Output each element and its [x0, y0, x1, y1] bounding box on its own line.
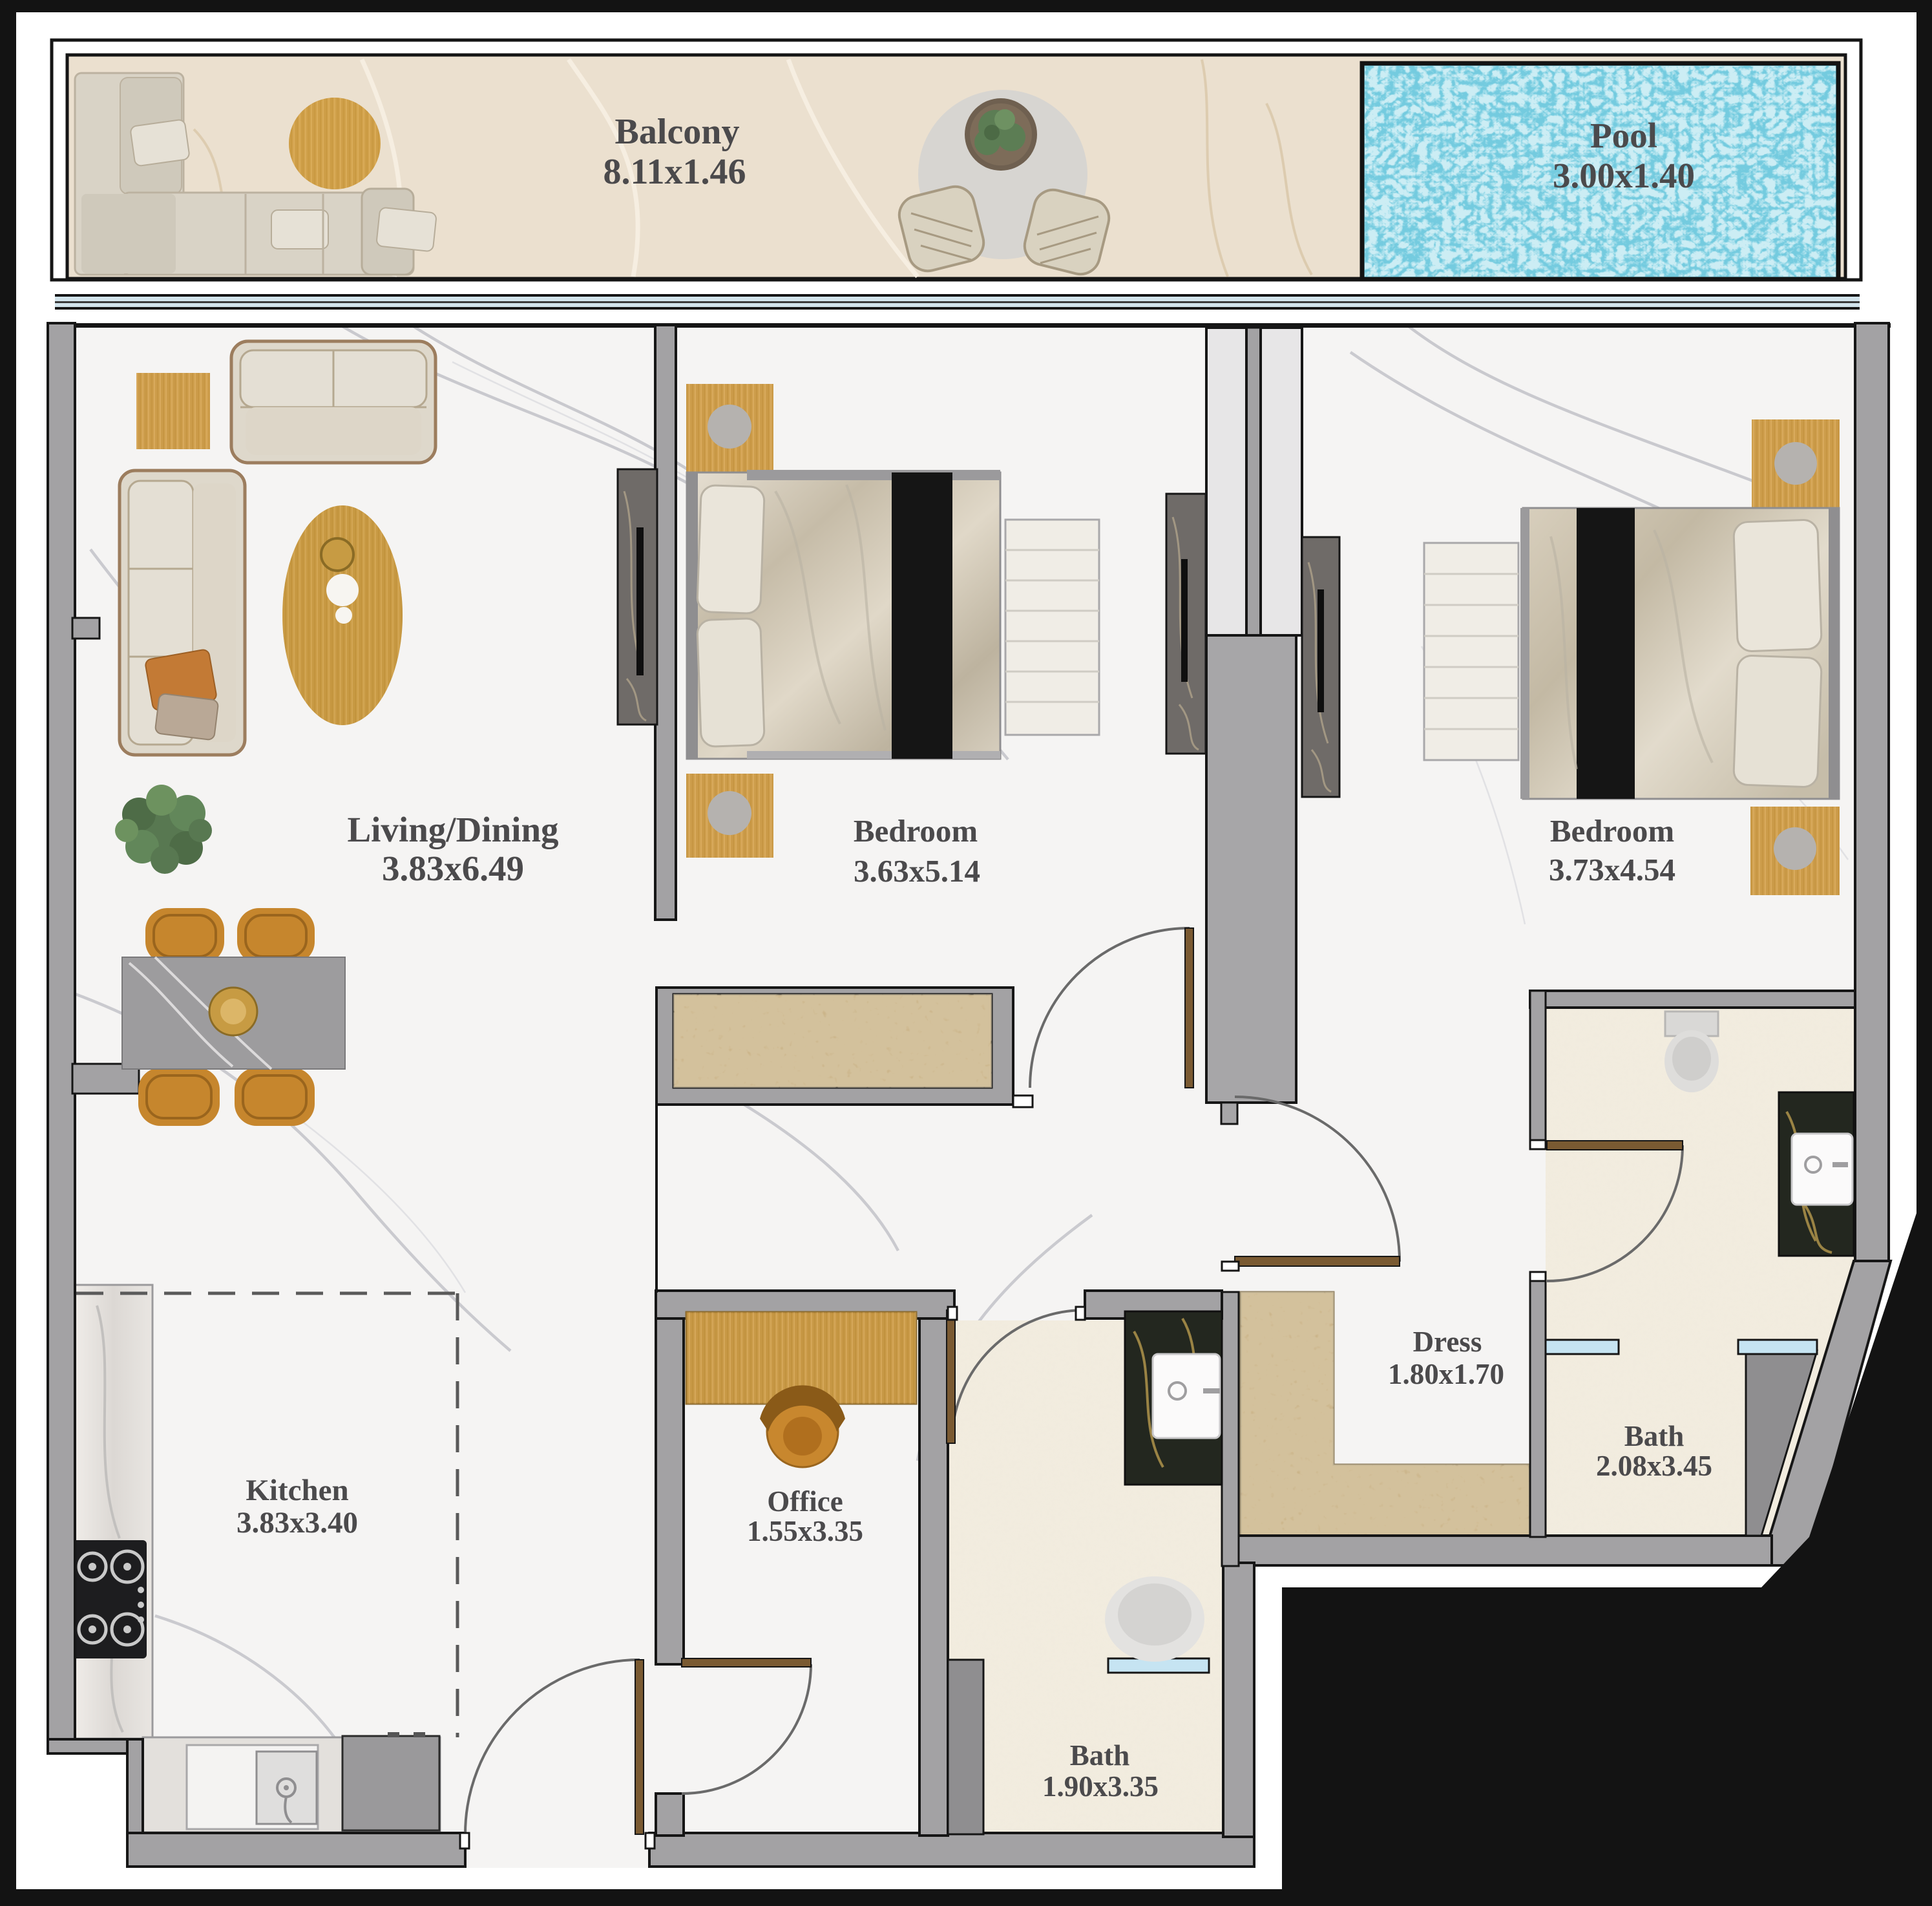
svg-text:Dress: Dress	[1413, 1326, 1482, 1358]
svg-text:3.83x3.40: 3.83x3.40	[236, 1506, 358, 1540]
svg-text:Bedroom: Bedroom	[854, 813, 978, 849]
svg-text:Bath: Bath	[1624, 1420, 1685, 1452]
svg-text:Pool: Pool	[1590, 116, 1657, 155]
svg-text:3.83x6.49: 3.83x6.49	[382, 849, 524, 888]
svg-text:3.63x5.14: 3.63x5.14	[854, 853, 980, 889]
svg-text:1.55x3.35: 1.55x3.35	[747, 1515, 863, 1547]
svg-text:3.73x4.54: 3.73x4.54	[1549, 852, 1675, 887]
svg-text:8.11x1.46: 8.11x1.46	[604, 152, 746, 192]
svg-text:Balcony: Balcony	[615, 112, 740, 152]
svg-text:Kitchen: Kitchen	[246, 1474, 348, 1507]
svg-text:Office: Office	[767, 1485, 843, 1518]
svg-text:Bath: Bath	[1070, 1739, 1130, 1772]
svg-text:2.08x3.45: 2.08x3.45	[1596, 1450, 1712, 1482]
svg-text:1.90x3.35: 1.90x3.35	[1042, 1770, 1159, 1803]
svg-text:3.00x1.40: 3.00x1.40	[1553, 156, 1695, 195]
svg-text:1.80x1.70: 1.80x1.70	[1388, 1358, 1504, 1390]
svg-text:Living/Dining: Living/Dining	[347, 810, 558, 849]
svg-text:Bedroom: Bedroom	[1550, 813, 1674, 849]
